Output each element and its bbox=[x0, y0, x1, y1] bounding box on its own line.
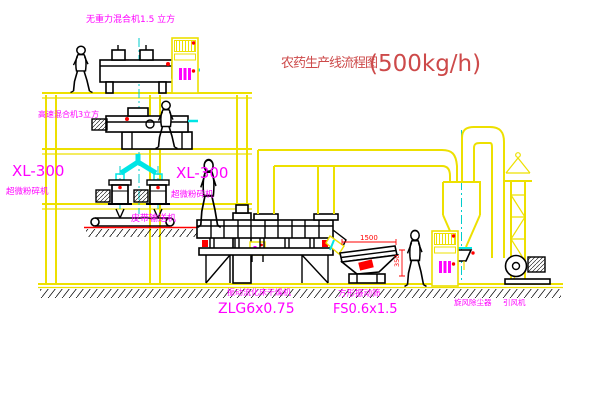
dimension-1500: 1500 bbox=[360, 234, 378, 242]
label-high-speed-mixer: 高速混合机3立方 bbox=[38, 109, 99, 119]
label-mill-left-model: XL-300 bbox=[12, 162, 64, 180]
label-belt-conveyor: 皮带输送机 bbox=[131, 212, 176, 224]
label-mill-left-name: 超微粉碎机 bbox=[6, 186, 49, 197]
label-dryer-name: 振动流化床干燥机 bbox=[227, 287, 291, 297]
label-gravity-mixer: 无重力混合机1.5 立方 bbox=[86, 13, 175, 25]
label-cyclone: 旋风除尘器 bbox=[454, 297, 492, 307]
dimension-350: 350 bbox=[393, 255, 401, 267]
high-speed-mixer bbox=[92, 108, 198, 149]
flow-diagram: 农药生产线流程图 (500kg/h) 无重力混合机1.5 立方 高速混合机3立方… bbox=[0, 0, 600, 403]
fluid-bed-dryer bbox=[197, 214, 346, 283]
exhaust-duct bbox=[258, 150, 457, 214]
person-figure bbox=[405, 231, 427, 287]
label-mill-right-name: 超微粉碎机 bbox=[171, 189, 214, 200]
title-text: 农药生产线流程图 bbox=[281, 56, 377, 71]
ground bbox=[38, 284, 563, 298]
label-screen-model: FS0.6x1.5 bbox=[333, 302, 398, 317]
mill-left bbox=[96, 174, 132, 204]
cad-drawing-canvas: 农药生产线流程图 (500kg/h) 无重力混合机1.5 立方 高速混合机3立方… bbox=[0, 0, 600, 403]
control-cabinet-right bbox=[432, 231, 458, 286]
label-fan: 引风机 bbox=[503, 297, 526, 307]
induced-draft-fan bbox=[505, 256, 550, 285]
label-screen-name: 方形振动筛 bbox=[338, 288, 381, 299]
control-cabinet-top bbox=[172, 38, 198, 93]
label-dryer-model: ZLG6x0.75 bbox=[218, 301, 295, 317]
person-figure bbox=[71, 46, 93, 92]
title-capacity: (500kg/h) bbox=[369, 51, 481, 77]
label-mill-right-model: XL-300 bbox=[176, 164, 228, 182]
